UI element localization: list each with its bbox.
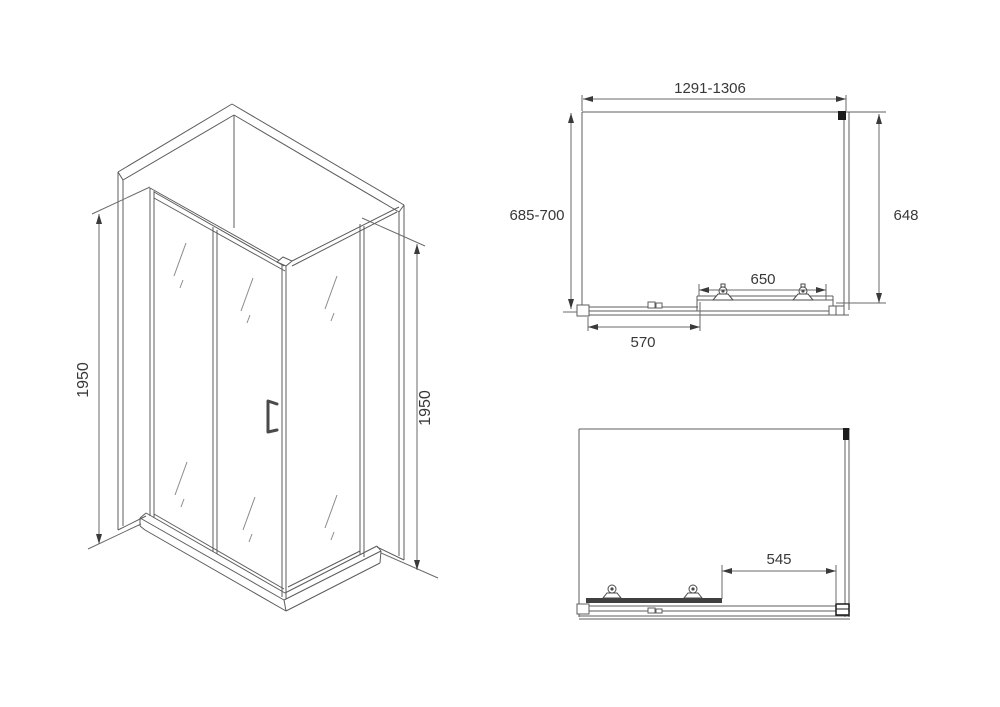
plan-view-door-closed: 1291-1306 685-700 648 650	[509, 80, 918, 351]
shower-tray	[140, 513, 381, 611]
dimension-depth-range: 685-700	[509, 113, 577, 312]
wall-profile-corner	[838, 111, 846, 120]
dimension-label-height-left: 1950	[75, 362, 92, 398]
dimension-label-side-depth: 648	[893, 207, 918, 224]
dimension-label-depth-range: 685-700	[509, 207, 564, 224]
roller-left	[713, 284, 733, 300]
plan-open-outline	[579, 429, 850, 617]
roller-right	[793, 284, 813, 300]
dimension-label-width-range: 1291-1306	[674, 80, 746, 97]
isometric-view: 1950 1950	[75, 104, 438, 611]
technical-drawing: 1950 1950	[0, 0, 1000, 707]
dimension-door-opening: 545	[722, 551, 836, 604]
glass-shine-marks	[174, 243, 337, 542]
roller-open-right	[684, 585, 702, 598]
drawing-canvas: 1950 1950	[0, 0, 1000, 707]
dimension-height-right: 1950	[362, 218, 438, 578]
plan-open-bottom-rail	[577, 604, 850, 619]
room-walls	[118, 104, 404, 560]
plan-view-door-open: 545	[577, 428, 850, 619]
dimension-side-depth: 648	[836, 114, 919, 303]
plan-closed-outline	[582, 112, 886, 310]
dimension-width-range: 1291-1306	[582, 80, 846, 111]
dimension-label-height-right: 1950	[417, 390, 434, 426]
dimension-label-fixed-panel: 570	[630, 334, 655, 351]
sliding-door-panel-open	[586, 598, 722, 603]
door-handle	[268, 401, 277, 432]
roller-open-left	[603, 585, 621, 598]
dimension-label-sliding-door: 650	[750, 271, 775, 288]
door-stopper	[836, 604, 849, 615]
dimension-label-door-opening: 545	[766, 551, 791, 568]
dimension-height-left: 1950	[75, 187, 150, 549]
wall-profile-corner-open	[843, 428, 849, 440]
dimension-fixed-panel: 570	[588, 302, 700, 351]
